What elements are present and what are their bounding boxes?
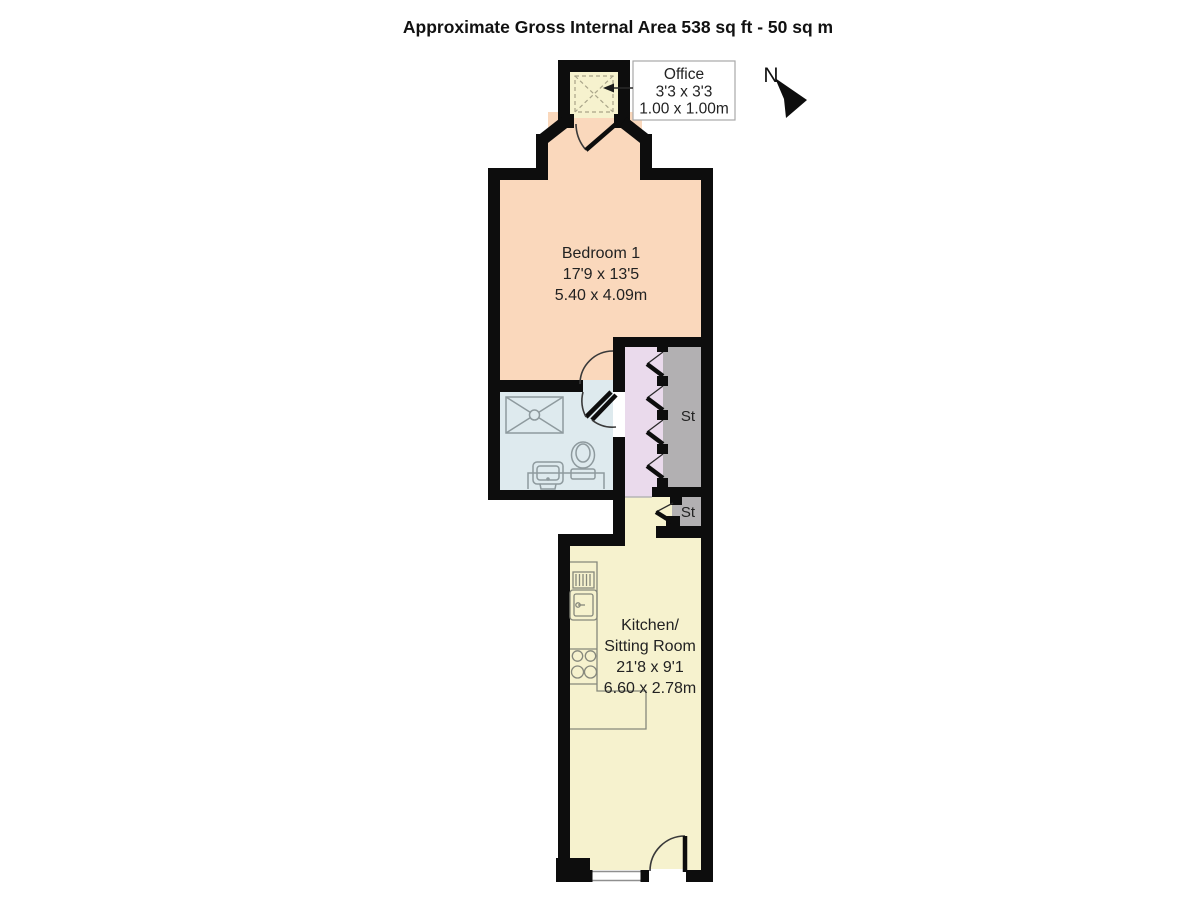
- bedroom-size-imperial: 17'9 x 13'5: [563, 266, 639, 283]
- kitchen-size-imperial: 21'8 x 9'1: [616, 659, 684, 676]
- kitchen-name-line2: Sitting Room: [604, 638, 696, 655]
- north-arrow-icon: [775, 78, 807, 118]
- kitchen-sink: [570, 590, 597, 620]
- office-size-metric: 1.00 x 1.00m: [639, 101, 729, 118]
- bedroom-size-metric: 5.40 x 4.09m: [555, 287, 648, 304]
- kitchen-window: [589, 870, 644, 882]
- kitchen-name-line1: Kitchen/: [621, 617, 679, 634]
- north-label: N: [763, 64, 778, 87]
- bedroom-name-label: Bedroom 1: [562, 245, 640, 262]
- room-floors: [500, 72, 701, 871]
- storage-large-label: St: [681, 408, 696, 425]
- storage-small-label: St: [681, 504, 696, 521]
- bedroom-label: Bedroom 1 17'9 x 13'5 5.40 x 4.09m: [555, 245, 648, 304]
- floor-plan-svg: Office 3'3 x 3'3 1.00 x 1.00m N Approxim…: [0, 0, 1200, 900]
- north-compass: N: [763, 64, 807, 118]
- kitchen-size-metric: 6.60 x 2.78m: [604, 680, 697, 697]
- office-size-imperial: 3'3 x 3'3: [656, 84, 713, 101]
- page-title: Approximate Gross Internal Area 538 sq f…: [403, 17, 833, 37]
- floor-plan-page: Office 3'3 x 3'3 1.00 x 1.00m N Approxim…: [0, 0, 1200, 900]
- lobby-door-gap: [583, 380, 613, 392]
- office-name-label: Office: [664, 66, 704, 83]
